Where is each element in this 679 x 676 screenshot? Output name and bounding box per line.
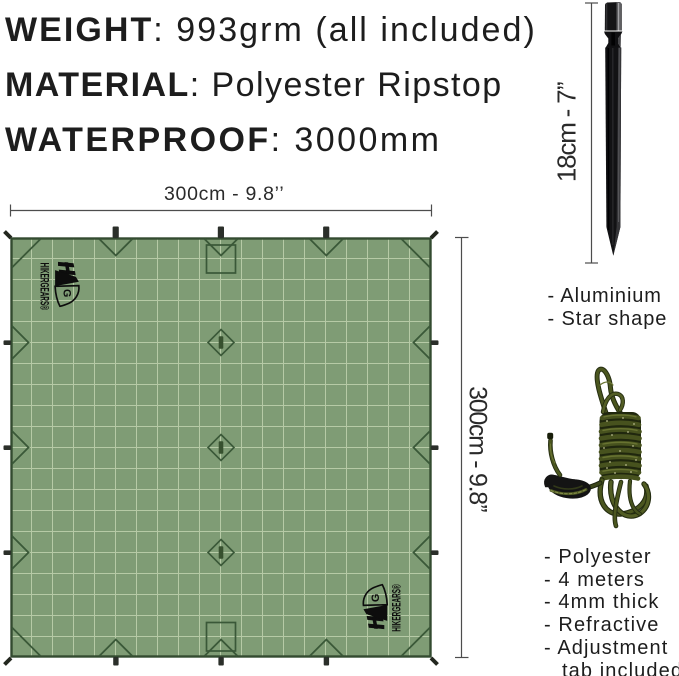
svg-text:HIKERGEARS®: HIKERGEARS® bbox=[37, 263, 51, 311]
svg-text:G: G bbox=[60, 289, 72, 297]
svg-text:HIKERGEARS®: HIKERGEARS® bbox=[390, 584, 404, 632]
svg-text:G: G bbox=[370, 594, 382, 602]
